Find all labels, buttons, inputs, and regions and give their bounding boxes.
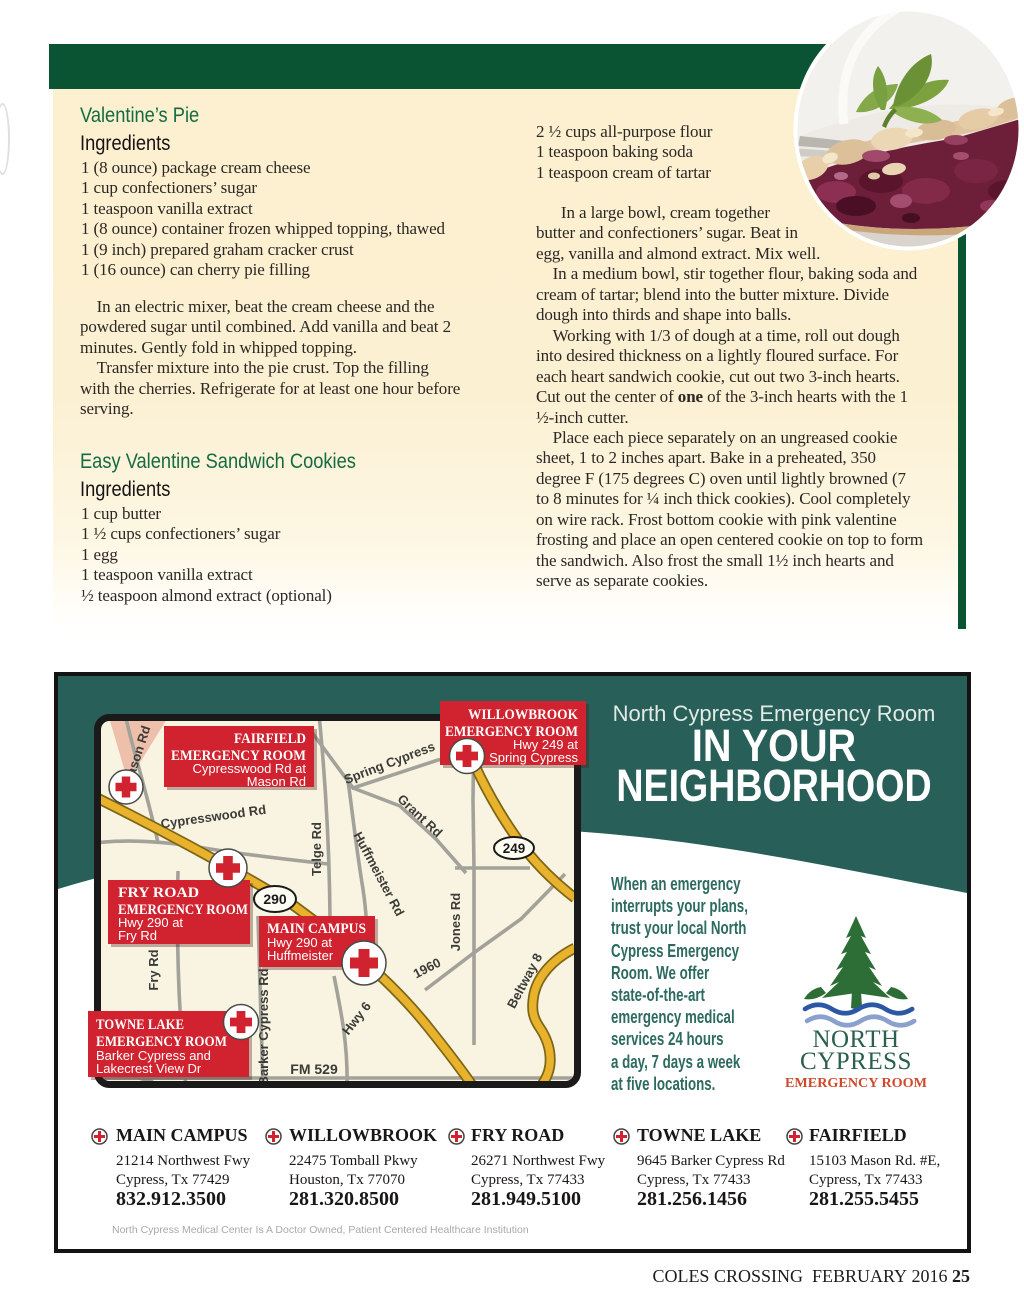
svg-text:FAIRFIELD: FAIRFIELD [234, 731, 306, 747]
svg-text:Fry Rd: Fry Rd [118, 928, 157, 943]
svg-text:Huffmeister: Huffmeister [267, 948, 334, 963]
svg-text:FRY ROAD: FRY ROAD [118, 885, 199, 901]
svg-text:Spring Cypress: Spring Cypress [489, 750, 578, 765]
svg-text:249: 249 [503, 841, 526, 856]
svg-text:Mason Rd: Mason Rd [247, 774, 306, 789]
svg-text:Lakecrest View Dr: Lakecrest View Dr [96, 1061, 202, 1076]
svg-text:WILLOWBROOK: WILLOWBROOK [468, 707, 579, 723]
svg-text:EMERGENCY ROOM: EMERGENCY ROOM [785, 1076, 927, 1091]
svg-text:Jones Rd: Jones Rd [448, 893, 463, 952]
svg-text:Telge Rd: Telge Rd [309, 822, 324, 876]
svg-text:CYPRESS: CYPRESS [800, 1048, 912, 1075]
svg-text:FM 529: FM 529 [290, 1061, 338, 1077]
svg-text:290: 290 [263, 891, 287, 907]
svg-text:TOWNE LAKE: TOWNE LAKE [96, 1017, 184, 1033]
svg-text:Fry Rd: Fry Rd [146, 949, 161, 990]
